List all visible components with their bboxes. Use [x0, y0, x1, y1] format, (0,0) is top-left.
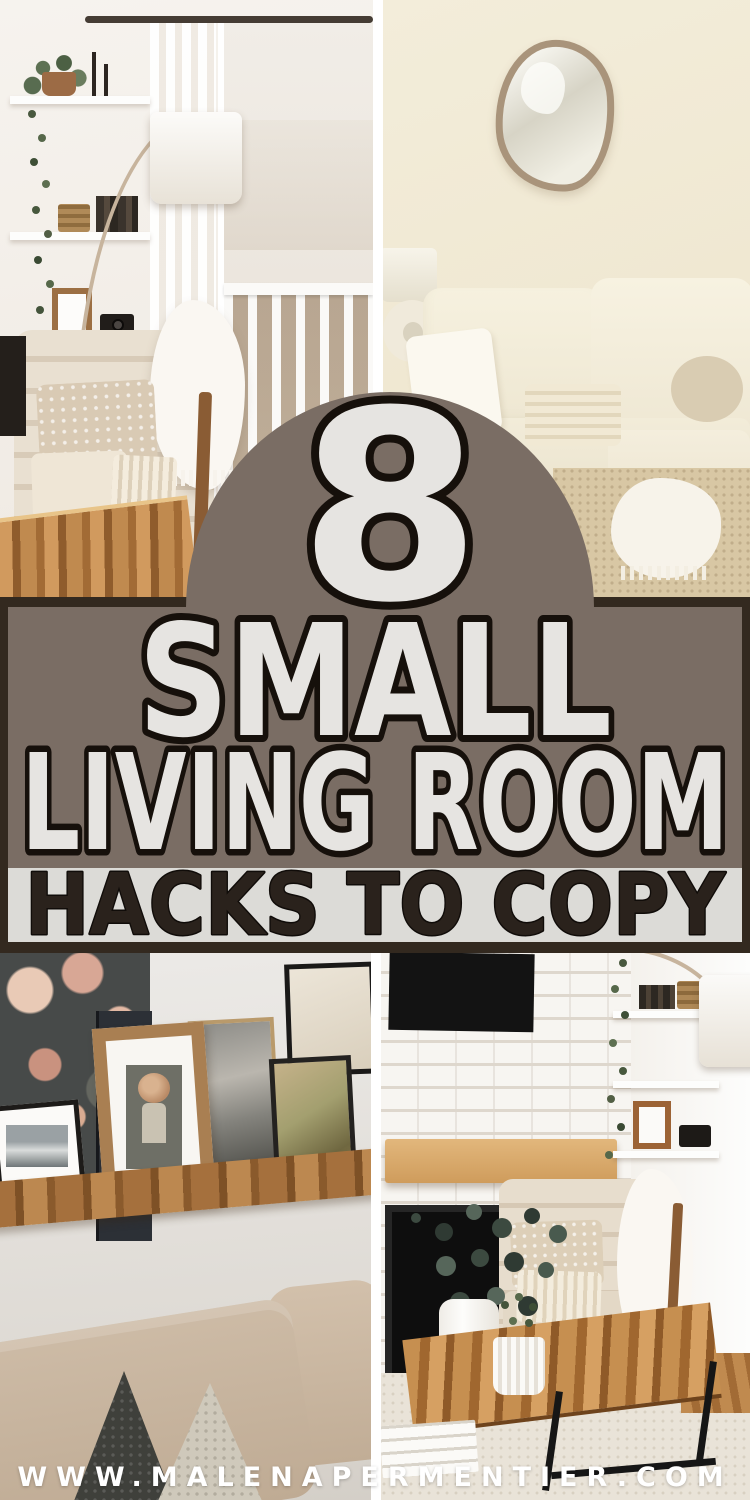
knit-blanket: [611, 478, 721, 578]
title-line-2: LIVING ROOM: [8, 742, 742, 864]
blanket-tassels: [621, 566, 707, 580]
photo-bottom-left-picture-ledge: [0, 953, 371, 1500]
wall-tv: [388, 953, 534, 1032]
photo-bottom-right-fireplace: [381, 953, 750, 1500]
title-line-3: HACKS TO COPY: [8, 868, 742, 945]
arc-lamp-shade: [699, 975, 750, 1067]
badge-number: 8: [186, 392, 594, 608]
mirror-reflection: [521, 62, 565, 114]
basket: [58, 204, 90, 232]
window-view: [224, 120, 373, 250]
railing-top-bar: [224, 283, 373, 295]
title-line-3-text: HACKS TO COPY: [25, 856, 726, 955]
eucalyptus-branches: [411, 1213, 421, 1223]
side-table: [0, 336, 26, 436]
camera: [679, 1125, 711, 1147]
picture-frame: [633, 1101, 671, 1149]
pinterest-pin: 8 SMALL LIVING ROOM HACKS TO COPY: [0, 0, 750, 1500]
candlestick: [104, 64, 108, 96]
small-plant: [501, 1301, 509, 1309]
arc-lamp-shade: [150, 112, 242, 204]
organic-wall-mirror: [490, 36, 620, 196]
title-line-1: SMALL: [8, 598, 742, 748]
floral-head-figure: [138, 1073, 170, 1103]
curtain-rod: [85, 16, 373, 23]
candlestick: [92, 52, 96, 96]
figure-body: [142, 1103, 166, 1143]
wall-shelf: [613, 1081, 719, 1088]
seascape-art: [6, 1125, 68, 1167]
trailing-vine: [28, 110, 36, 118]
round-pillow: [671, 356, 743, 422]
plant-pot: [42, 72, 76, 96]
fluted-plant-pot: [493, 1337, 545, 1395]
wall-shelf: [613, 1151, 719, 1158]
website-url: WWW.MALENAPERMENTIER.COM: [0, 1462, 750, 1493]
wood-mantel: [385, 1139, 617, 1183]
